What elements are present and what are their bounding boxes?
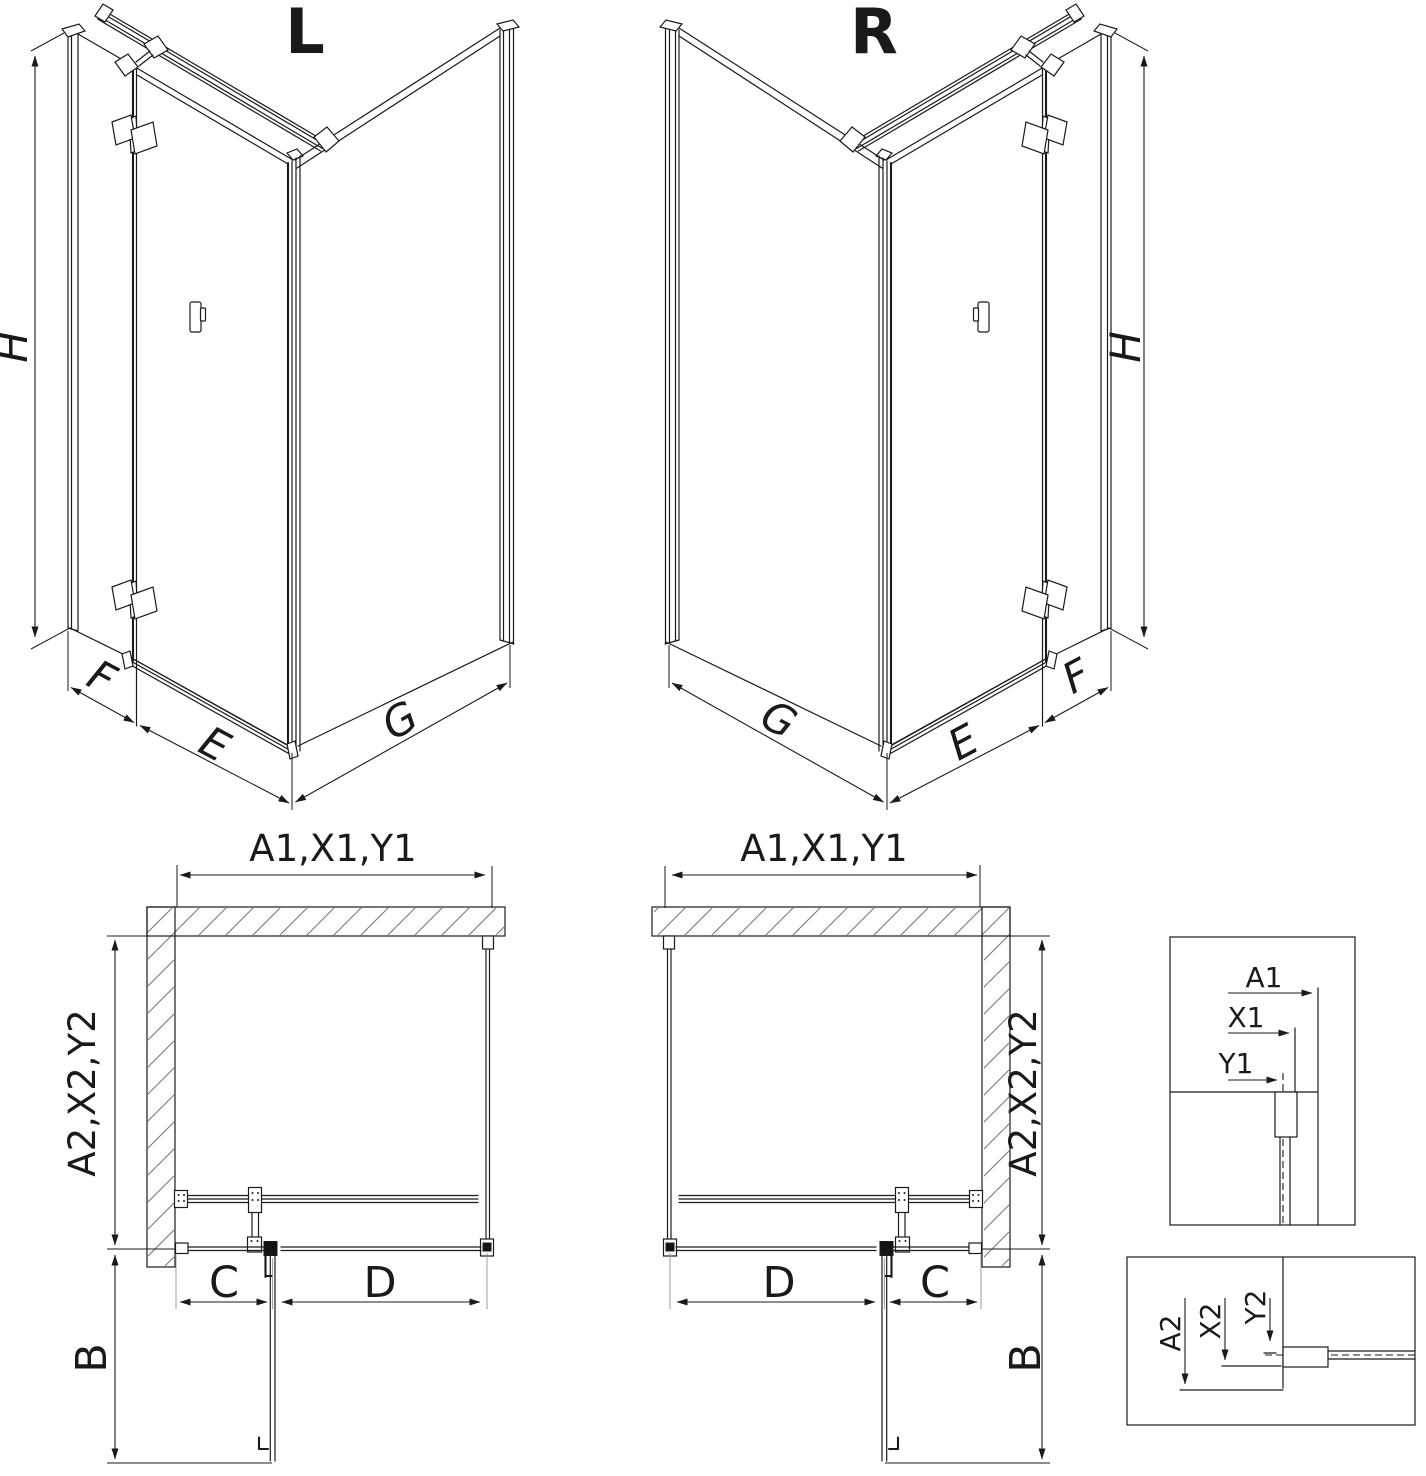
dim-label-height-right: H <box>1101 331 1150 363</box>
detail-a2-label: A2 <box>1154 1315 1187 1352</box>
detail-y1-label: Y1 <box>1218 1047 1254 1080</box>
dim-label-height-left: H <box>0 331 37 363</box>
detail-x2-label: X2 <box>1194 1303 1227 1340</box>
variant-label-right: R <box>850 0 898 68</box>
plan-d-label-right: D <box>762 1258 795 1308</box>
shower-enclosure-dimension-diagram: L R H F E G H G E F A1,X1,Y1 A2,X2,Y2 B … <box>0 0 1426 1476</box>
plan-c-label-left: C <box>209 1258 239 1308</box>
plan-c-label-right: C <box>920 1258 950 1308</box>
plan-width-label-left: A1,X1,Y1 <box>249 827 416 870</box>
detail-a1-label: A1 <box>1246 961 1283 994</box>
plan-depth-label-left: A2,X2,Y2 <box>61 1009 104 1176</box>
plan-width-label-right: A1,X1,Y1 <box>740 827 907 870</box>
plan-d-label-left: D <box>363 1258 396 1308</box>
plan-depth-label-right: A2,X2,Y2 <box>1002 1009 1045 1176</box>
plan-b-label-right: B <box>1001 1343 1051 1373</box>
variant-label-left: L <box>285 0 325 68</box>
plan-b-label-left: B <box>67 1343 117 1373</box>
detail-x1-label: X1 <box>1228 1001 1265 1034</box>
detail-y2-label: Y2 <box>1239 1290 1272 1326</box>
diagram-canvas: L R H F E G H G E F A1,X1,Y1 A2,X2,Y2 B … <box>0 0 1426 1476</box>
